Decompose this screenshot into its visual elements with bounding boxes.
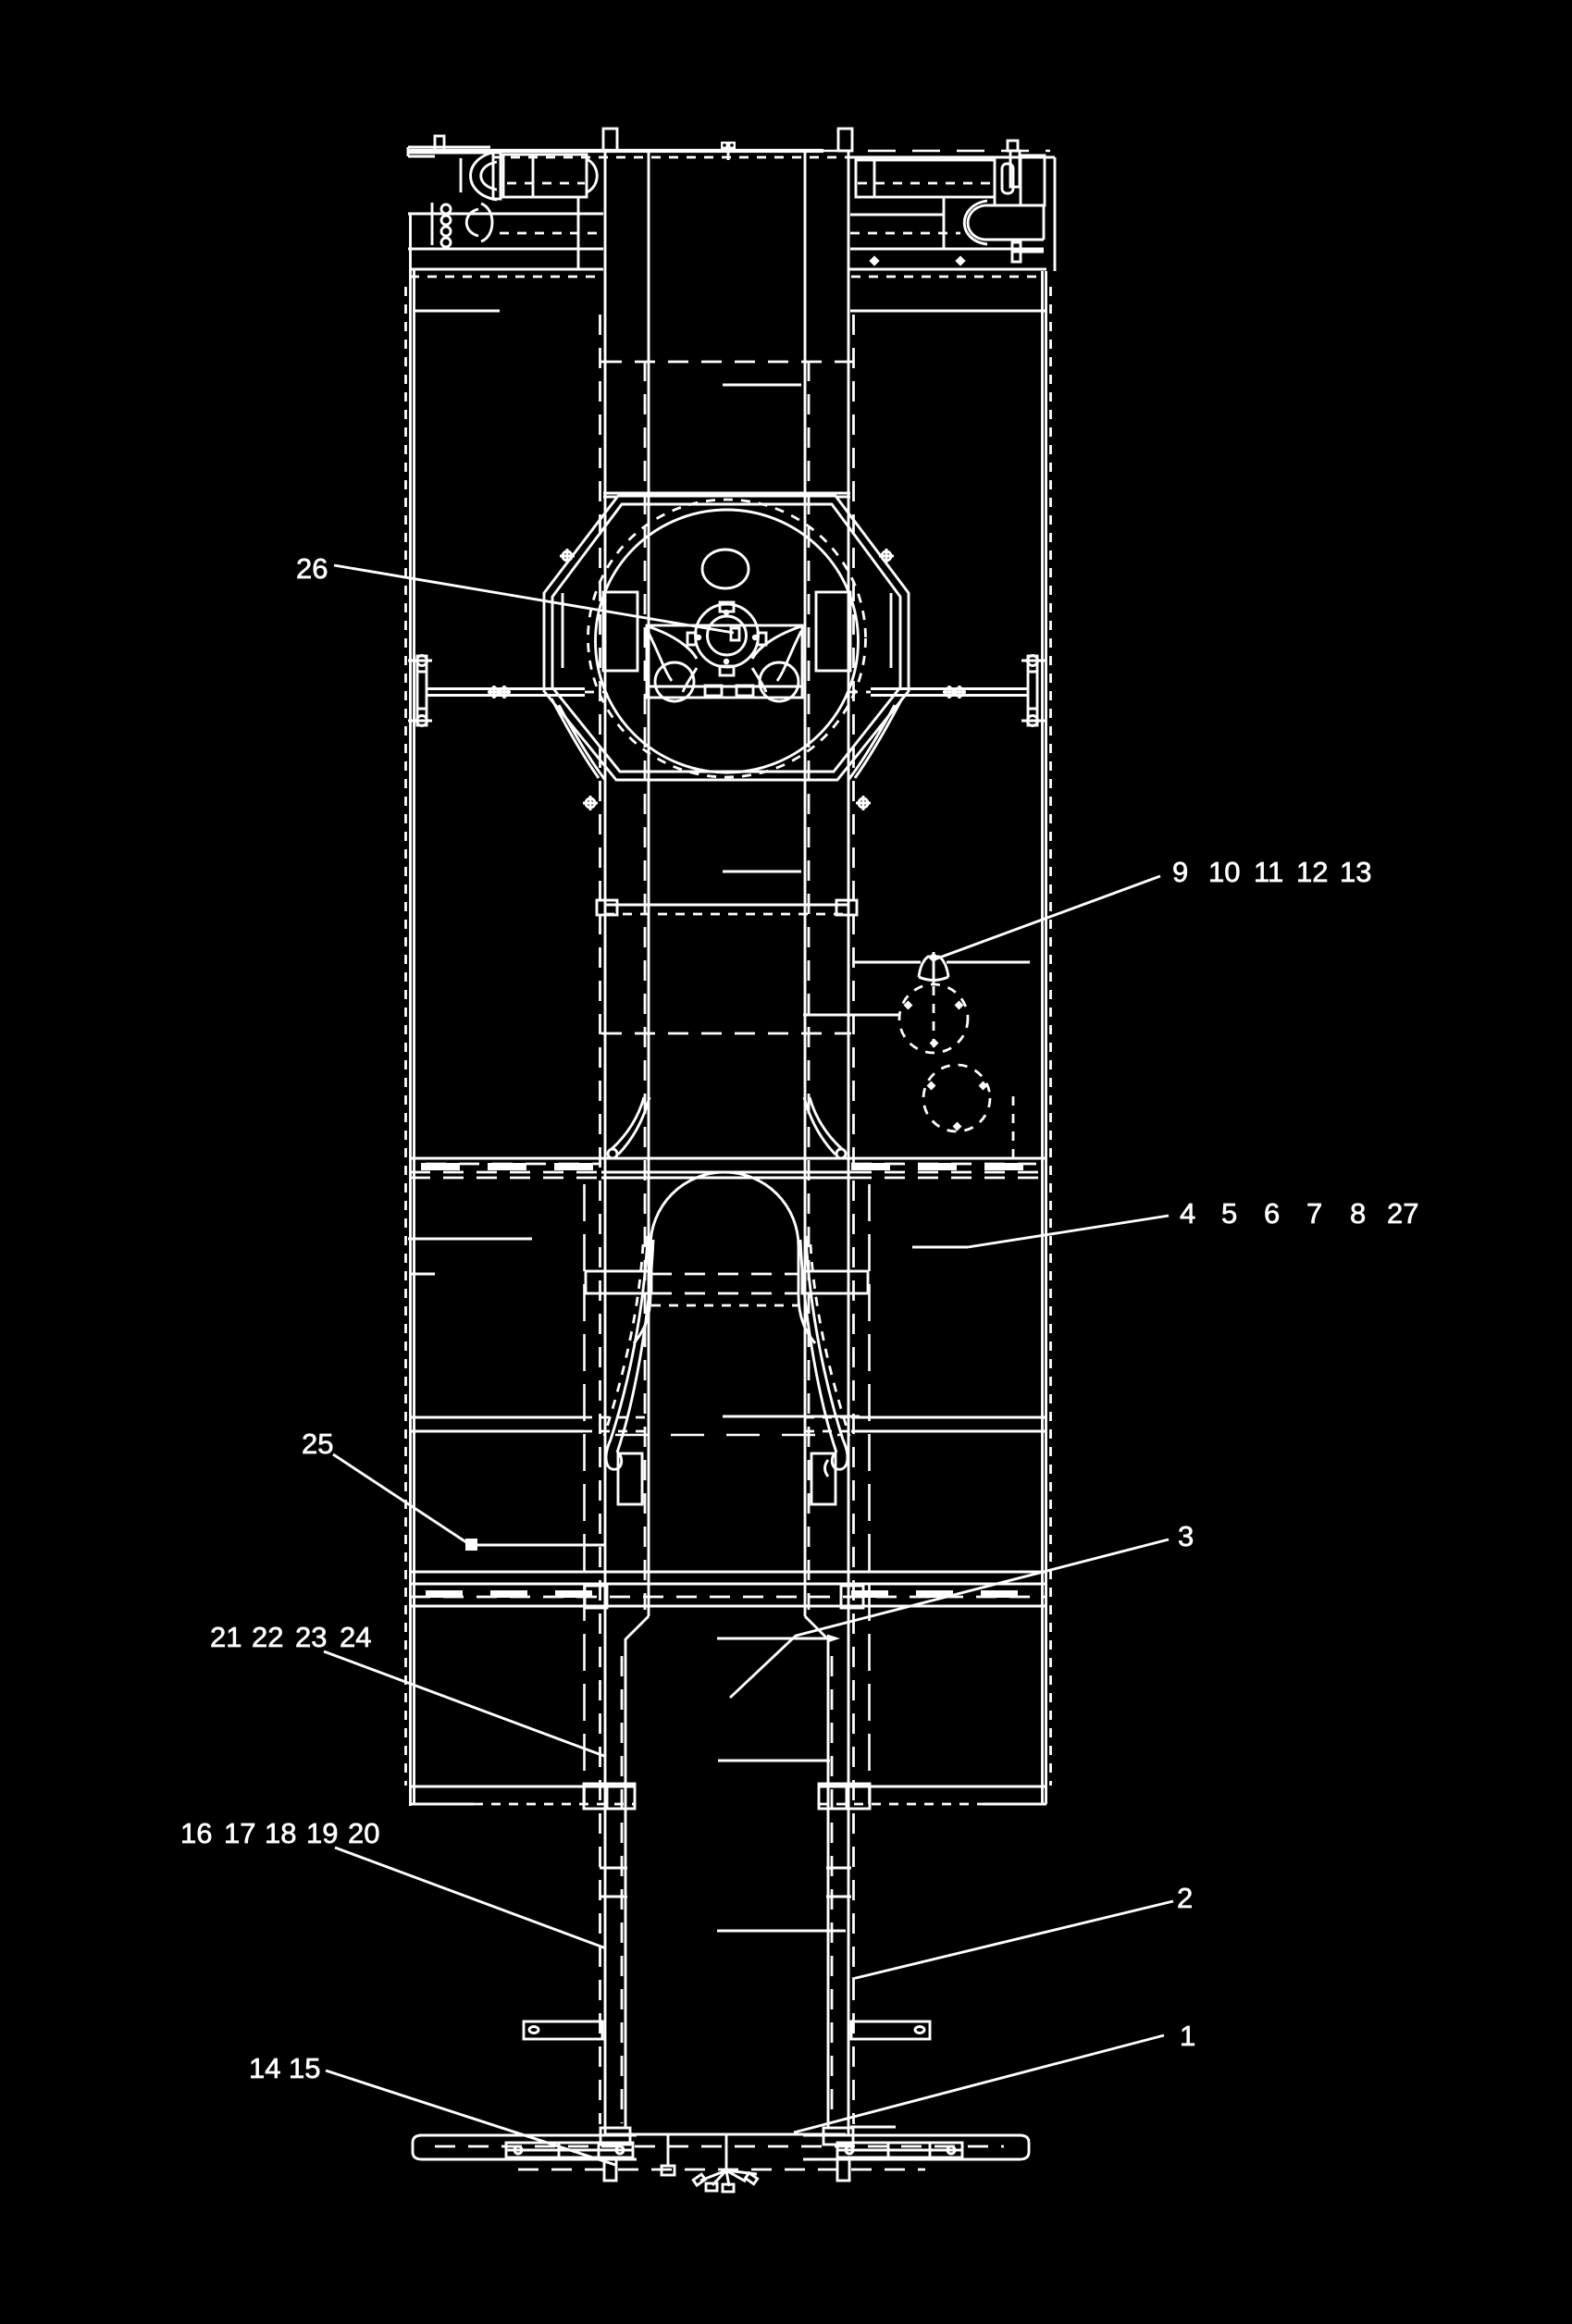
svg-text:5: 5 [1221, 1197, 1237, 1230]
svg-text:7: 7 [1306, 1197, 1322, 1230]
svg-text:20: 20 [348, 1817, 379, 1849]
svg-text:26: 26 [296, 552, 328, 585]
svg-text:14: 14 [249, 2052, 280, 2084]
svg-text:16: 16 [180, 1817, 212, 1849]
svg-text:2: 2 [1177, 1882, 1193, 1914]
svg-text:22: 22 [252, 1621, 283, 1653]
svg-text:1: 1 [1180, 2020, 1195, 2052]
svg-text:4: 4 [1180, 1197, 1195, 1230]
svg-text:17: 17 [224, 1817, 255, 1849]
svg-text:10: 10 [1208, 856, 1240, 888]
svg-text:8: 8 [1350, 1197, 1366, 1230]
svg-text:19: 19 [306, 1817, 338, 1849]
svg-text:15: 15 [289, 2052, 320, 2084]
svg-text:6: 6 [1264, 1197, 1280, 1230]
svg-text:3: 3 [1178, 1520, 1194, 1552]
svg-text:23: 23 [295, 1621, 327, 1653]
svg-text:18: 18 [265, 1817, 296, 1849]
svg-text:24: 24 [340, 1621, 371, 1653]
svg-text:27: 27 [1387, 1197, 1418, 1230]
svg-text:11: 11 [1254, 856, 1283, 888]
svg-text:13: 13 [1340, 856, 1371, 888]
svg-text:9: 9 [1172, 856, 1188, 888]
svg-text:25: 25 [302, 1428, 333, 1460]
svg-text:21: 21 [210, 1621, 241, 1653]
svg-text:12: 12 [1296, 856, 1328, 888]
